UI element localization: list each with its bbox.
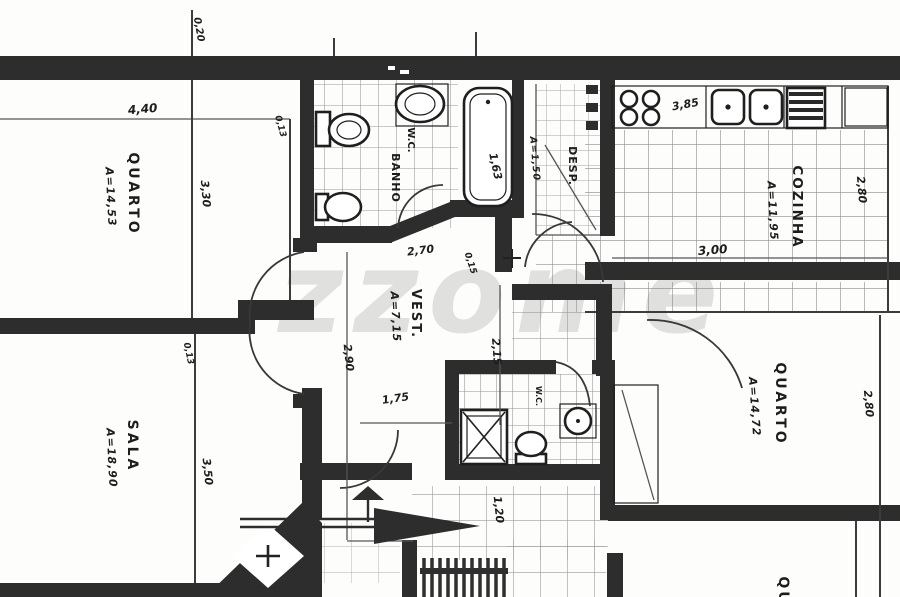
floor-plan-drawing: zzome [0,0,900,597]
wc-toilet-icon [516,432,546,464]
room-label-sala: SALA [124,420,140,473]
dim-3-30: 3,30 [198,180,213,209]
bathroom-sink-icon [396,86,444,122]
room-area-vest: A=7,15 [388,290,404,342]
dim-2-80-quarto: 2,80 [861,390,876,419]
room-label-quarto-top-left: QUARTO [125,152,141,235]
room-label-wc-small: W.C. [534,386,543,406]
room-label-vest: VEST. [408,289,423,339]
kitchen-tiles-lower [585,282,888,312]
room-label-quarto-bottom: QUARTO [775,576,791,597]
bathtub-icon [464,88,512,206]
bidet-icon [316,193,361,221]
room-label-cozinha: COZINHA [789,165,805,248]
fridge-icon [787,88,825,128]
floor-plan: zzome [0,0,900,597]
room-label-banho: BANHO [389,153,402,203]
stair-hall-tiles [506,540,606,597]
room-label-wc-banho: W.C. [405,127,416,152]
dim-4-40: 4,40 [126,101,158,118]
toilet-icon [316,112,369,146]
dim-2-80-kitchen: 2,80 [854,176,869,205]
room-label-desp: DESP. [566,146,579,186]
hall-tiles [512,300,600,362]
room-label-quarto-right: QUARTO [772,362,788,445]
kitchen-tiles [585,130,888,262]
dim-2-15: 2,15 [489,338,504,366]
dim-3-00: 3,00 [697,242,728,258]
